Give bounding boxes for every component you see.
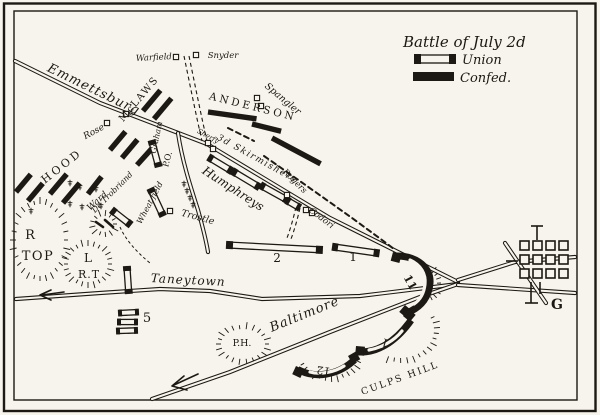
snyder-house [193, 52, 198, 57]
legend-union-symbol [414, 54, 456, 64]
fifth-corps-number: 5 [143, 311, 151, 326]
twelfth-corps-number: 12 [316, 363, 332, 378]
union-bar-fifth-corps-2 [117, 319, 138, 326]
union-bar-fifth-corps-3 [116, 327, 138, 335]
rose-house [104, 120, 109, 125]
gettysburg-label: G [551, 297, 563, 313]
legend-confed-label: Confed. [460, 71, 511, 86]
spangler-house-1 [254, 95, 259, 100]
legend-confed-symbol [413, 72, 454, 81]
first-corps-number: 1 [349, 250, 357, 264]
round-top-label: TOP [22, 249, 55, 264]
legend-union-label: Union [462, 53, 502, 68]
little-round-top-l-label: L [84, 251, 92, 265]
sherfy-house-2 [210, 146, 215, 151]
round-top-r-label: R [25, 228, 36, 243]
union-bar-fifth-corps-1 [118, 309, 139, 317]
battle-map: Battle of July 2d Union Confed. Emmettsb… [0, 0, 600, 415]
trostle-house [167, 208, 172, 213]
second-corps-number: 2 [273, 251, 281, 265]
rogers-house [284, 192, 289, 197]
warfield-house [173, 54, 178, 59]
warfield-label: Warfield [136, 52, 173, 64]
powers-hill-label: P.H. [233, 338, 252, 349]
snyder-label: Snyder [208, 51, 240, 61]
scanned-battle-map-page: Battle of July 2d Union Confed. Emmettsb… [0, 0, 600, 415]
little-round-top-label: R.T [78, 268, 100, 281]
legend-title: Battle of July 2d [402, 33, 526, 51]
